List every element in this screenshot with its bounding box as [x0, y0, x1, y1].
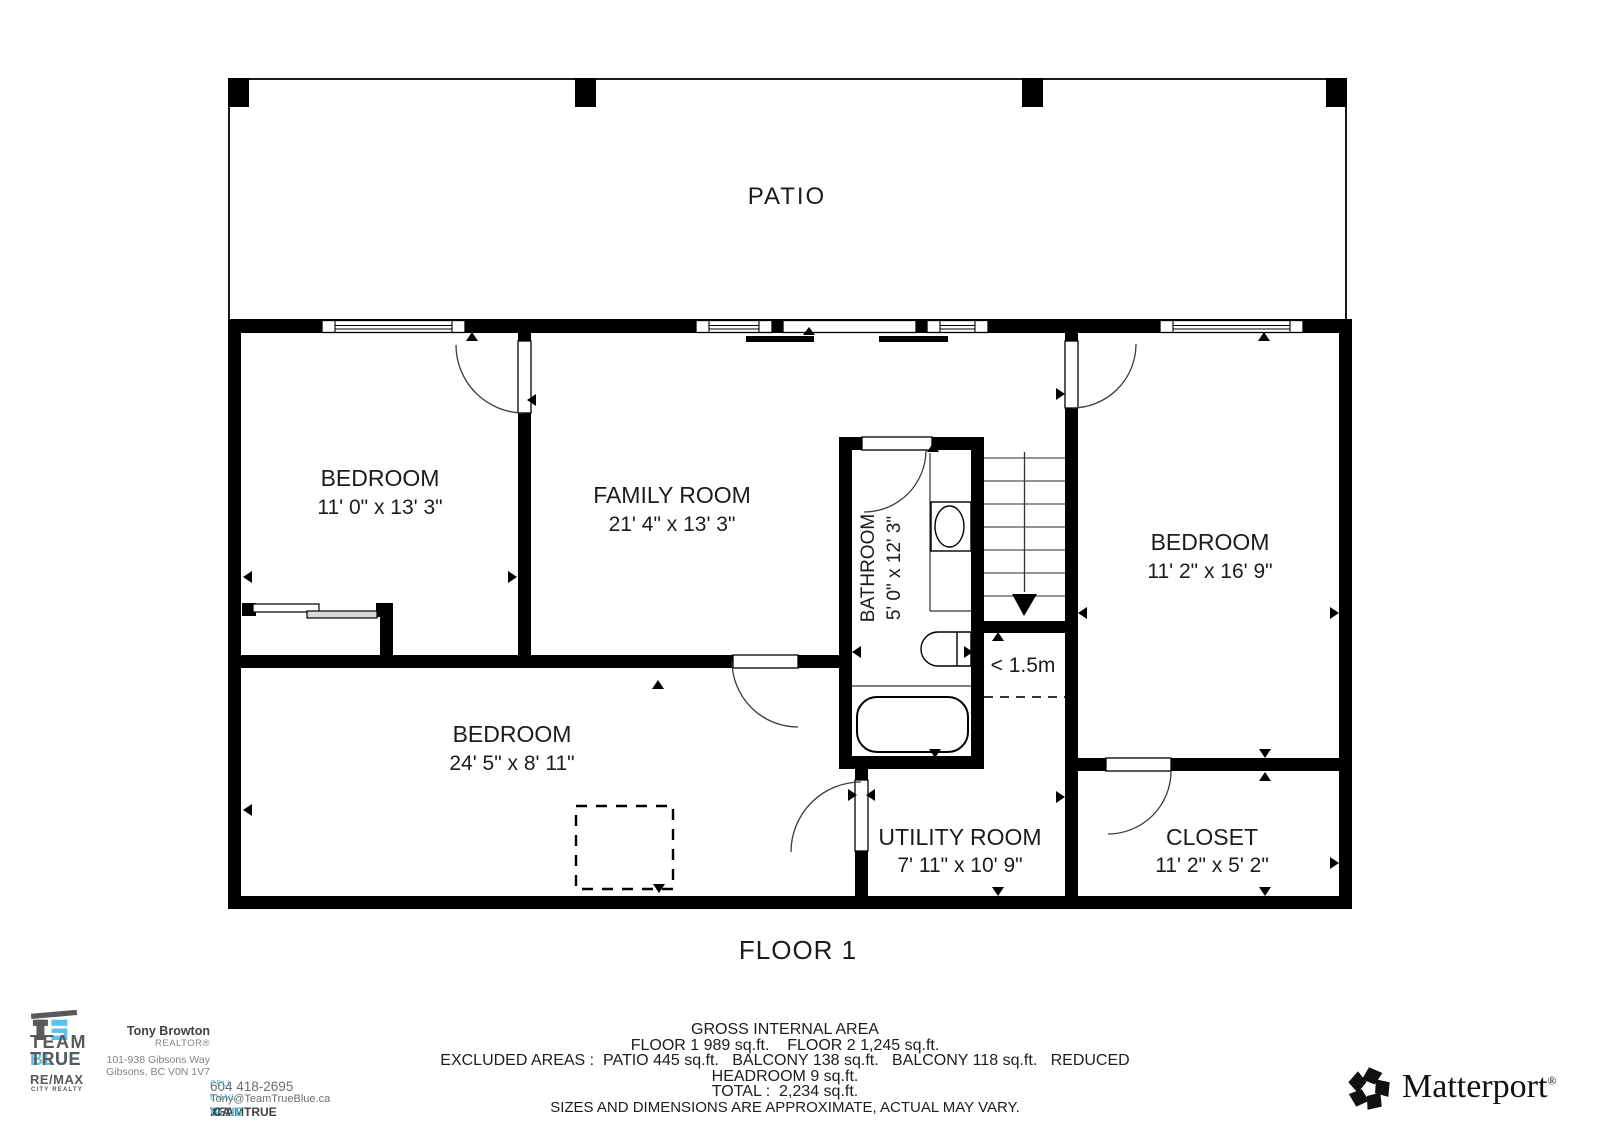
door-bedroom-2 — [1065, 341, 1078, 408]
trueblue-word: TRUE BLUE — [30, 1049, 81, 1070]
room-dims-family-room: 21' 4" x 13' 3" — [609, 513, 736, 536]
agent-contact-block: Tony Browton REALTOR® 101-938 Gibsons Wa… — [90, 1002, 210, 1120]
room-dims-bedroom-3: 24' 5" x 8' 11" — [449, 752, 574, 775]
area-summary: GROSS INTERNAL AREA FLOOR 1 989 sq.ft. F… — [300, 1022, 1270, 1116]
reduced-headroom-label: < 1.5m — [991, 654, 1056, 677]
area-summary-floors: FLOOR 1 989 sq.ft. FLOOR 2 1,245 sq.ft. — [300, 1038, 1270, 1054]
door-utility-room — [855, 780, 868, 851]
matterport-branding: Matterport® — [1320, 1058, 1592, 1118]
cell-number: 604 418-2695 — [210, 1079, 293, 1094]
registered-mark: ® — [1547, 1074, 1556, 1088]
room-label-bathroom: BATHROOM — [858, 514, 879, 622]
matterport-wordmark: Matterport® — [1402, 1068, 1557, 1106]
room-dims-bathroom: 5' 0" x 12' 3" — [884, 516, 905, 620]
dashed-feature-square — [576, 806, 673, 889]
area-summary-excluded: EXCLUDED AREAS : PATIO 445 sq.ft. BALCON… — [300, 1053, 1270, 1069]
door-swing-arcs — [456, 344, 1171, 852]
room-dims-bedroom-1: 11' 0" x 13' 3" — [317, 496, 442, 519]
agent-title: REALTOR® — [155, 1038, 210, 1049]
patio-posts — [228, 78, 1347, 107]
patio-label: PATIO — [748, 183, 826, 210]
room-dims-utility-room: 7' 11" x 10' 9" — [897, 854, 1022, 877]
agent-name: Tony Browton — [127, 1024, 210, 1038]
door-bathroom — [862, 437, 932, 450]
floor-title: FLOOR 1 — [739, 935, 857, 965]
room-label-bedroom-3: BEDROOM — [453, 721, 572, 747]
room-label-bedroom-1: BEDROOM — [321, 465, 440, 491]
brokerage-name: RE/MAX — [30, 1072, 84, 1087]
walls — [228, 319, 1352, 909]
door-bedroom-1 — [518, 341, 531, 413]
closet-sliding-panels — [253, 604, 377, 618]
room-label-family-room: FAMILY ROOM — [593, 482, 751, 508]
agent-address-line2: Gibsons, BC V0N 1V7 — [106, 1066, 210, 1078]
area-summary-disclaimer: SIZES AND DIMENSIONS ARE APPROXIMATE, AC… — [300, 1100, 1270, 1116]
area-summary-total: TOTAL : 2,234 sq.ft. — [300, 1084, 1270, 1100]
room-dims-closet: 11' 2" x 5' 2" — [1155, 854, 1269, 877]
agent-card: TEAM TRUE BLUE RE/MAX CITY REALTY Tony B… — [28, 1002, 210, 1120]
matterport-word: Matterport — [1402, 1068, 1547, 1105]
room-label-utility-room: UTILITY ROOM — [878, 824, 1041, 850]
toilet-icon — [931, 502, 971, 551]
true-word: TRUE — [30, 1049, 81, 1070]
agent-address-line1: 101-938 Gibsons Way — [107, 1054, 211, 1066]
floor-plan-svg: PATIO BEDROOM 11' 0" x 13' 3" FAMILY ROO… — [0, 0, 1600, 1131]
brokerage-sub: CITY REALTY — [31, 1087, 83, 1093]
room-label-bedroom-2: BEDROOM — [1151, 529, 1270, 555]
door-closet — [1106, 758, 1171, 771]
wall-markers — [243, 332, 1339, 896]
email-address: Tony@TeamTrueBlue.ca — [210, 1093, 330, 1105]
bathtub-icon — [857, 697, 968, 752]
room-label-closet: CLOSET — [1166, 824, 1258, 850]
matterport-logo-icon — [1346, 1066, 1392, 1112]
site-part-3: .CA — [210, 1105, 231, 1119]
stairs-down-arrow — [1012, 594, 1037, 616]
area-summary-excluded-2: HEADROOM 9 sq.ft. — [300, 1069, 1270, 1085]
door-bottom-bedroom — [733, 655, 798, 668]
area-summary-title: GROSS INTERNAL AREA — [300, 1022, 1270, 1038]
floorplan-page: PATIO BEDROOM 11' 0" x 13' 3" FAMILY ROO… — [0, 0, 1600, 1131]
sink-icon — [921, 632, 971, 666]
room-dims-bedroom-2: 11' 2" x 16' 9" — [1147, 560, 1272, 583]
sliding-door-opening — [783, 321, 916, 333]
